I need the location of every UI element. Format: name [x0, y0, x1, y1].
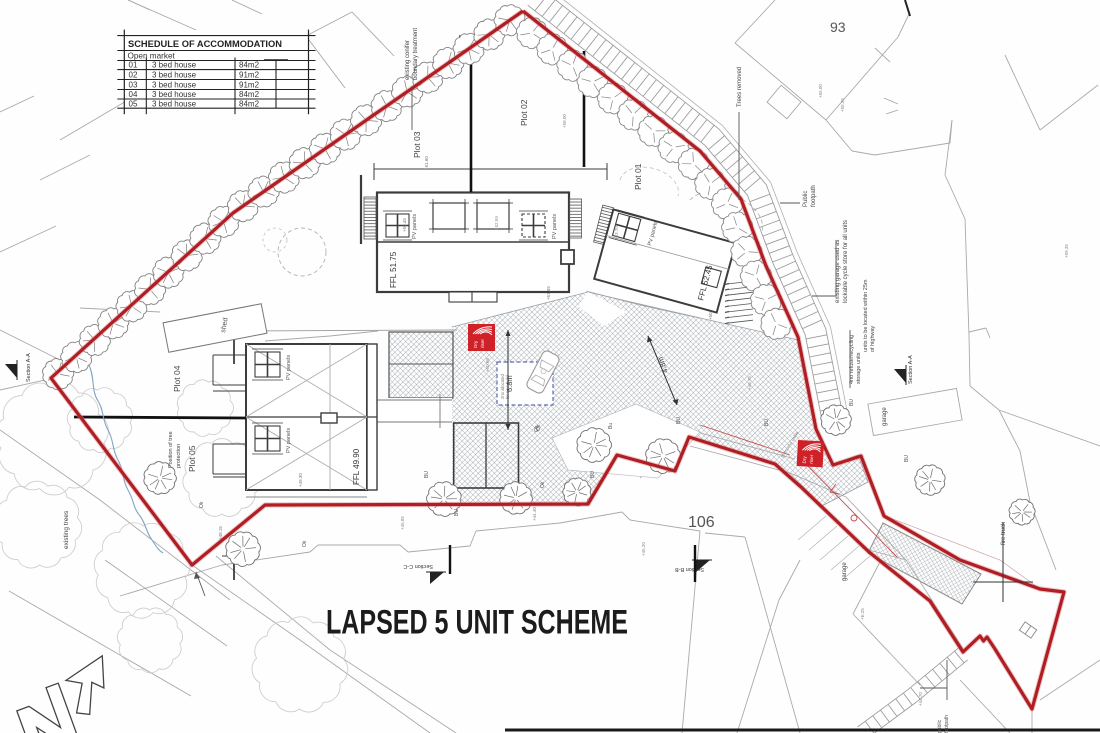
svg-text:Plot 04: Plot 04 — [172, 365, 182, 392]
svg-text:footpath: footpath — [811, 185, 817, 207]
svg-text:3 bed house: 3 bed house — [152, 61, 197, 70]
svg-text:lockable cycle store for all u: lockable cycle store for all units — [843, 220, 849, 303]
svg-text:+52.59: +52.59 — [494, 216, 499, 230]
svg-text:garage: garage — [882, 407, 888, 426]
svg-text:units to be located within 25m: units to be located within 25m — [863, 279, 869, 352]
svg-text:01: 01 — [129, 61, 138, 70]
svg-text:PV panels: PV panels — [412, 214, 418, 239]
svg-text:+E.25: +E.25 — [860, 608, 865, 620]
svg-text:existing conifer: existing conifer — [405, 40, 411, 80]
svg-text:SCHEDULE OF ACCOMMODATION: SCHEDULE OF ACCOMMODATION — [128, 39, 282, 49]
svg-text:Plot 02: Plot 02 — [519, 99, 529, 126]
svg-text:Trees removed: Trees removed — [737, 67, 743, 107]
svg-text:storage units: storage units — [856, 352, 862, 384]
svg-text:+55.00: +55.00 — [818, 84, 823, 98]
svg-text:FFL 49.90: FFL 49.90 — [352, 448, 361, 485]
svg-text:3 bed house: 3 bed house — [152, 71, 197, 80]
svg-text:3 bed house: 3 bed house — [152, 90, 197, 99]
svg-text:93: 93 — [830, 19, 846, 35]
svg-text:BU: BU — [849, 399, 855, 406]
svg-text:existing trees: existing trees — [63, 510, 70, 549]
svg-text:BU: BU — [454, 509, 460, 516]
svg-text:Ok: Ok — [199, 501, 205, 508]
svg-text:02: 02 — [129, 71, 138, 80]
svg-text:106: 106 — [688, 514, 715, 531]
svg-text:+50.09: +50.09 — [485, 358, 490, 372]
svg-text:Ok: Ok — [536, 424, 542, 431]
svg-text:public: public — [937, 719, 943, 733]
svg-text:+55.35: +55.35 — [840, 98, 845, 112]
svg-text:+44.70: +44.70 — [918, 692, 923, 706]
svg-text:Dry: Dry — [473, 340, 478, 348]
svg-text:BU: BU — [764, 419, 770, 426]
svg-text:91m2: 91m2 — [239, 80, 260, 89]
svg-text:Ok: Ok — [302, 540, 308, 547]
svg-text:Open market: Open market — [128, 52, 176, 61]
svg-text:84m2: 84m2 — [239, 99, 260, 108]
svg-text:BU: BU — [904, 455, 910, 462]
svg-text:03: 03 — [129, 80, 138, 89]
svg-text:+50.45: +50.45 — [402, 218, 407, 232]
svg-text:Bu: Bu — [608, 423, 614, 429]
svg-text:Dry: Dry — [802, 455, 807, 463]
svg-text:3 bed house: 3 bed house — [152, 80, 197, 89]
svg-text:PV panels: PV panels — [286, 355, 292, 380]
svg-text:fire truck: fire truck — [1001, 521, 1007, 545]
svg-text:Plot 05: Plot 05 — [187, 445, 197, 472]
svg-text:+51.60: +51.60 — [424, 156, 429, 170]
svg-text:+51.65: +51.65 — [546, 286, 551, 300]
svg-text:FFL 51.75: FFL 51.75 — [389, 251, 398, 288]
svg-text:Ok: Ok — [540, 481, 546, 488]
svg-text:LAPSED 5 UNIT SCHEME: LAPSED 5 UNIT SCHEME — [326, 604, 628, 642]
svg-text:Section A-A: Section A-A — [26, 353, 32, 382]
svg-text:84m2: 84m2 — [239, 61, 260, 70]
svg-text:84m2: 84m2 — [239, 90, 260, 99]
svg-text:+45.85: +45.85 — [400, 516, 405, 530]
svg-text:riser: riser — [480, 339, 485, 348]
svg-text:of highway: of highway — [870, 325, 876, 352]
svg-text:6.8m: 6.8m — [505, 375, 514, 392]
svg-text:Plot 03: Plot 03 — [412, 131, 422, 158]
svg-text:BU: BU — [676, 417, 682, 424]
svg-text:PV panels: PV panels — [552, 214, 558, 239]
svg-text:Section B-B: Section B-B — [675, 566, 704, 572]
svg-text:PV panels: PV panels — [286, 428, 292, 453]
svg-text:footpath: footpath — [944, 715, 950, 733]
svg-text:BU: BU — [424, 471, 430, 478]
svg-text:Position of tree: Position of tree — [168, 431, 174, 468]
svg-text:+45.20: +45.20 — [641, 542, 646, 556]
svg-text:Plot 01: Plot 01 — [633, 163, 643, 190]
svg-text:+58.00: +58.00 — [562, 114, 567, 128]
svg-text:91m2: 91m2 — [239, 71, 260, 80]
svg-text:Section C-C: Section C-C — [403, 563, 433, 569]
svg-text:+44.40: +44.40 — [532, 507, 537, 521]
svg-text:Public: Public — [803, 191, 809, 207]
svg-text:+49.75: +49.75 — [747, 376, 752, 390]
svg-text:05: 05 — [129, 99, 138, 108]
svg-text:boundary treatment: boundary treatment — [413, 28, 419, 80]
svg-text:3 bed house: 3 bed house — [152, 99, 197, 108]
svg-text:garage: garage — [842, 562, 848, 581]
svg-text:protection: protection — [176, 444, 182, 468]
svg-text:riser: riser — [809, 454, 814, 464]
svg-text:Section A-A: Section A-A — [908, 355, 914, 384]
svg-text:+49.30: +49.30 — [298, 473, 303, 487]
svg-text:04: 04 — [129, 90, 138, 99]
svg-text:+59.35: +59.35 — [1064, 244, 1069, 258]
svg-text:+53.70: +53.70 — [614, 226, 619, 240]
svg-text:BU: BU — [590, 471, 596, 478]
